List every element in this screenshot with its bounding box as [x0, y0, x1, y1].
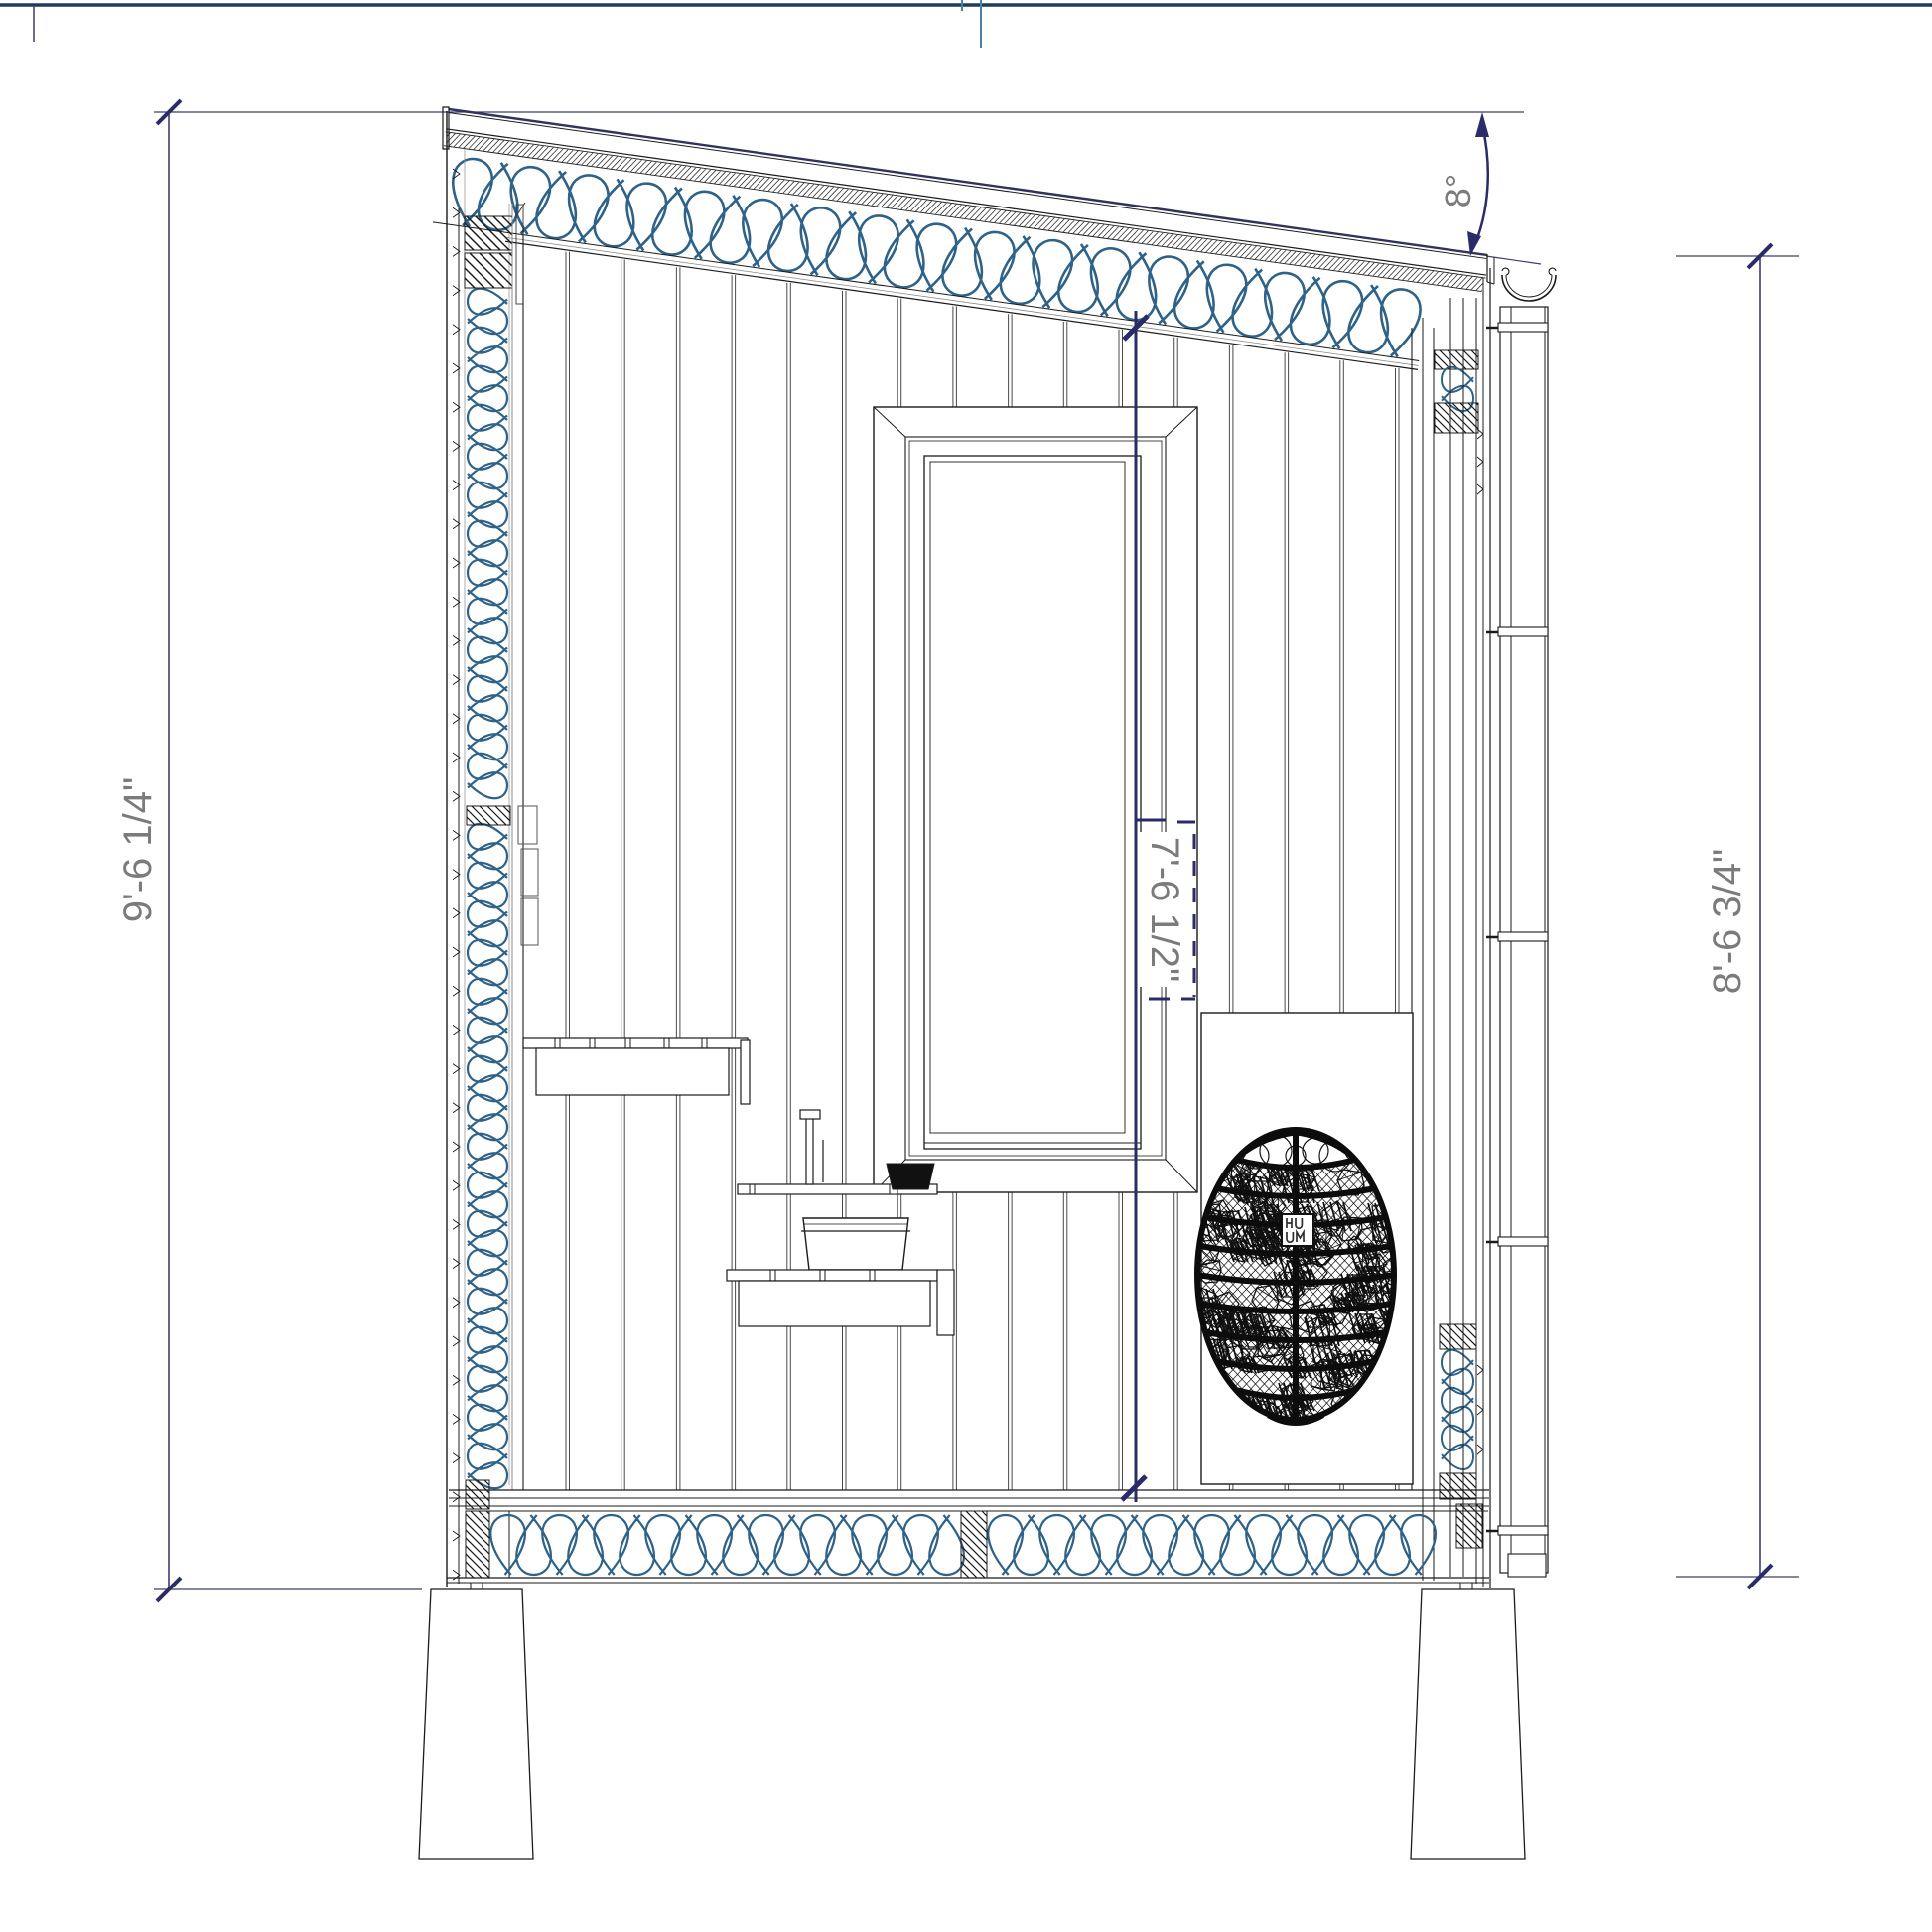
svg-text:9'-6 1/4": 9'-6 1/4": [116, 777, 160, 922]
svg-text:7'-6 1/2": 7'-6 1/2": [1143, 837, 1186, 982]
svg-text:8'-6 3/4": 8'-6 3/4": [1706, 849, 1749, 994]
svg-text:8°: 8°: [1438, 174, 1478, 207]
